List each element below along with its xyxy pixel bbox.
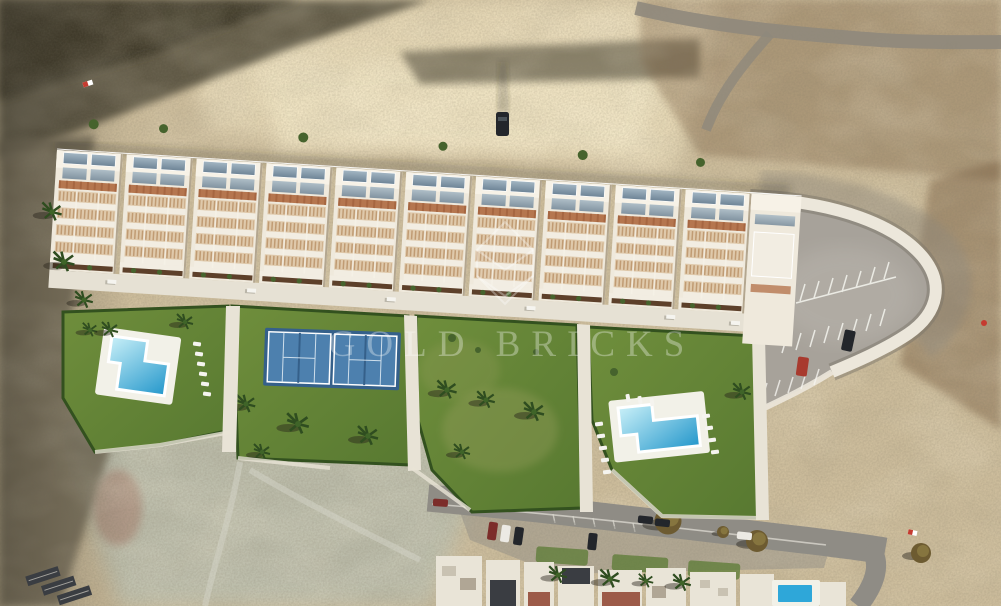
garden-left-pool-plot [63,306,231,452]
pool-right [608,391,710,463]
watermark-text: GOLD BRICKS [329,324,696,365]
townhouse-block [538,181,611,305]
townhouse-block [678,190,751,314]
dry-lawn-patch [442,388,558,472]
parked-car [638,515,654,524]
wall-sign-red [981,320,987,326]
annex-building [742,194,801,347]
terrain-left-shading [0,0,130,606]
parked-car [655,518,671,527]
townhouse-block [608,185,681,309]
house-roof [740,574,774,606]
pool-left [95,327,182,405]
shrub [610,368,618,376]
parked-car [587,533,598,551]
townhouse-block [329,168,402,292]
scene-svg: GOLD BRICKS [0,0,1001,606]
existing-pool [772,580,820,606]
parked-car [433,499,448,508]
townhouse-block [259,163,332,287]
townhouse-block [189,159,262,283]
aerial-render: GOLD BRICKS [0,0,1001,606]
townhouse-block [119,154,192,278]
parked-car [737,531,753,540]
townhouse-block [399,172,472,296]
house-roof [820,582,846,606]
house-roof [690,572,736,606]
townhouse-block [49,150,122,274]
